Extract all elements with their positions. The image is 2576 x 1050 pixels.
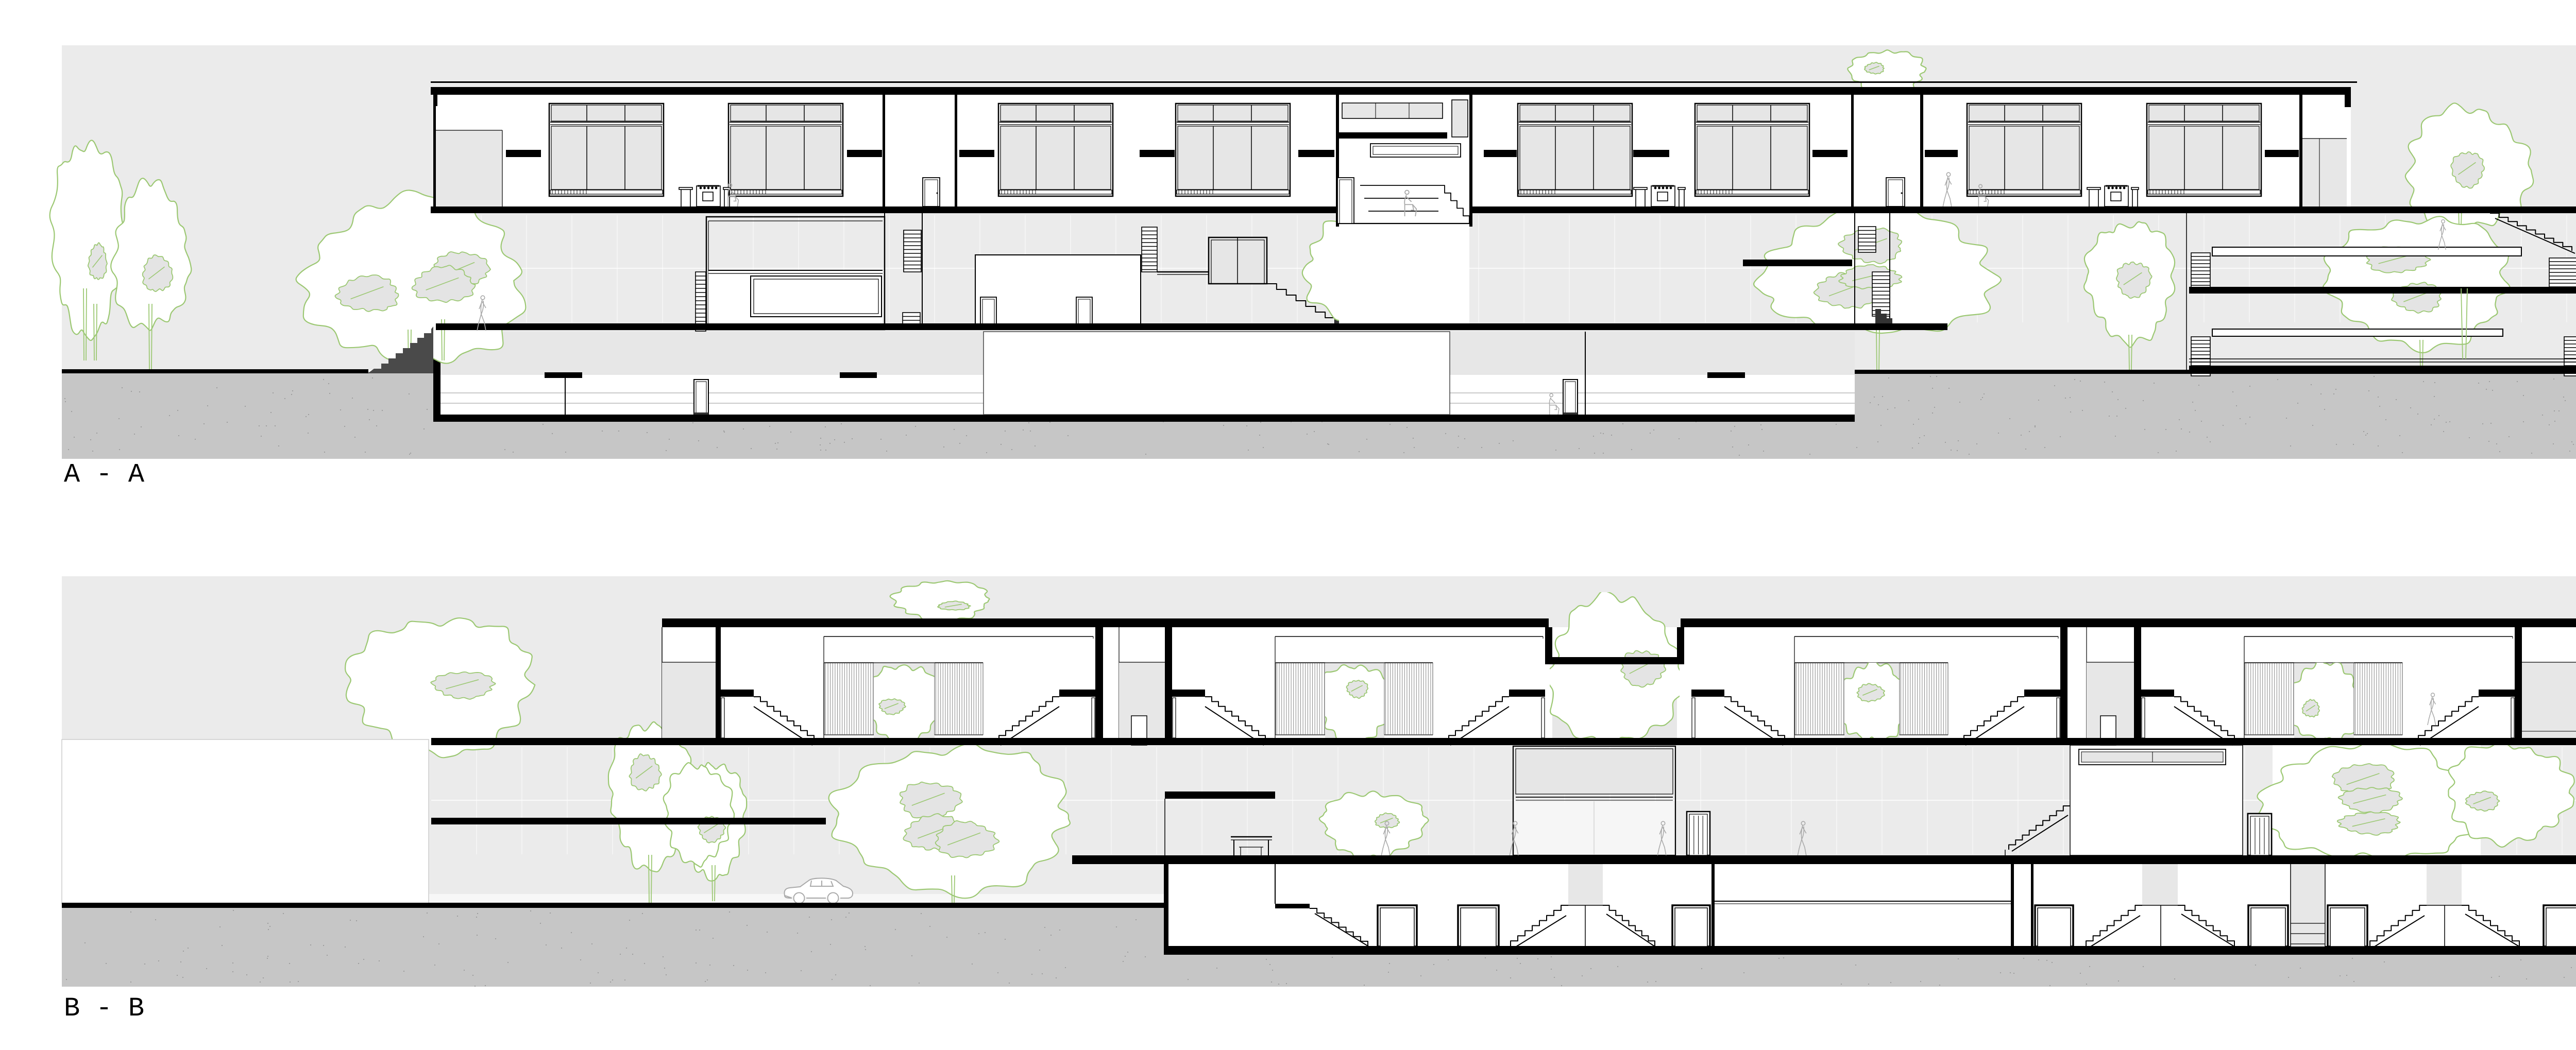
svg-text:B - B: B - B (64, 993, 144, 1024)
svg-text:A - A: A - A (64, 459, 145, 490)
